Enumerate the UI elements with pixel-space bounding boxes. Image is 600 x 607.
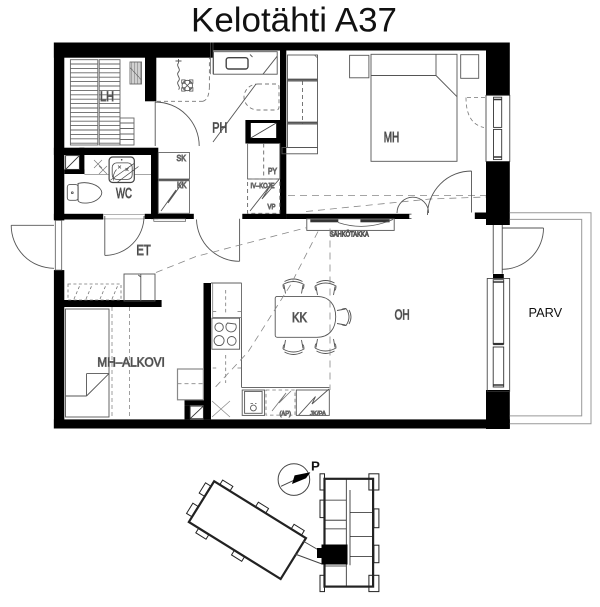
svg-text:(AP): (AP) — [280, 410, 292, 417]
svg-text:MH–ALKOVI: MH–ALKOVI — [97, 355, 164, 370]
svg-text:PH: PH — [212, 121, 227, 137]
svg-text:WC: WC — [116, 185, 132, 202]
svg-text:PY: PY — [268, 167, 278, 176]
svg-text:Kelotähti A37: Kelotähti A37 — [191, 2, 397, 40]
svg-text:LH: LH — [100, 89, 114, 104]
svg-text:MH: MH — [384, 130, 400, 146]
svg-text:PARV: PARV — [529, 306, 563, 320]
svg-text:OH: OH — [395, 307, 410, 324]
svg-text:IV–KOJE: IV–KOJE — [251, 183, 275, 190]
svg-text:SK: SK — [177, 154, 187, 163]
svg-text:P: P — [311, 459, 320, 474]
svg-text:JK/PA: JK/PA — [310, 410, 327, 417]
svg-text:ET: ET — [136, 242, 150, 259]
svg-text:SÄHKÖTAKKA: SÄHKÖTAKKA — [330, 230, 369, 238]
svg-text:VP: VP — [268, 204, 276, 211]
svg-text:KK: KK — [292, 310, 307, 325]
